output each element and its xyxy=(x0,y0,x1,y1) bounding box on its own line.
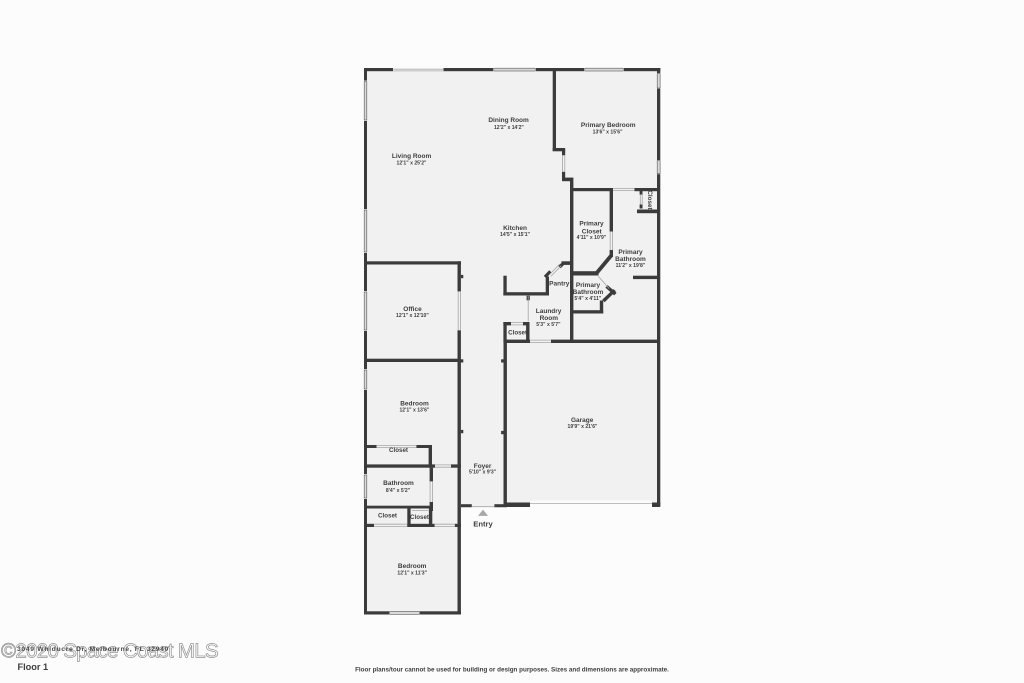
svg-text:Closet: Closet xyxy=(646,190,653,210)
svg-text:Closet: Closet xyxy=(410,514,429,521)
svg-text:Living Room: Living Room xyxy=(392,153,432,160)
svg-text:Floor 1: Floor 1 xyxy=(18,662,49,672)
svg-text:Dining Room: Dining Room xyxy=(488,117,529,124)
svg-text:Bedroom: Bedroom xyxy=(398,563,427,570)
svg-text:12'2" x 14'2": 12'2" x 14'2" xyxy=(494,125,524,131)
svg-text:Primary Bedroom: Primary Bedroom xyxy=(581,122,636,129)
svg-text:4'11" x 10'9": 4'11" x 10'9" xyxy=(577,235,607,241)
svg-text:Closet: Closet xyxy=(389,447,408,454)
svg-text:Primary: Primary xyxy=(618,249,643,256)
svg-text:Laundry: Laundry xyxy=(536,308,562,315)
svg-text:5'4" x 4'11": 5'4" x 4'11" xyxy=(574,296,601,302)
svg-text:Garage: Garage xyxy=(571,417,594,424)
svg-text:Bathroom: Bathroom xyxy=(615,256,646,263)
svg-text:19'9" x 21'6": 19'9" x 21'6" xyxy=(568,424,598,430)
svg-text:Closet: Closet xyxy=(508,330,527,337)
svg-text:11'2" x 19'8": 11'2" x 19'8" xyxy=(616,263,646,269)
svg-text:Floor plans/tour cannot be use: Floor plans/tour cannot be used for buil… xyxy=(355,666,669,673)
svg-text:5'3" x 5'7": 5'3" x 5'7" xyxy=(536,322,561,328)
svg-text:Office: Office xyxy=(403,306,422,313)
svg-text:Entry: Entry xyxy=(473,520,493,529)
svg-text:3049 Whiducre Dr, Melbourne, F: 3049 Whiducre Dr, Melbourne, FL 32940 xyxy=(17,646,169,653)
svg-text:Closet: Closet xyxy=(378,512,397,519)
svg-text:12'1" x 25'2": 12'1" x 25'2" xyxy=(397,160,427,166)
svg-text:Bathroom: Bathroom xyxy=(383,480,414,487)
svg-text:Bedroom: Bedroom xyxy=(400,400,429,407)
svg-text:Kitchen: Kitchen xyxy=(503,225,527,232)
svg-text:Primary: Primary xyxy=(579,221,604,228)
svg-text:5'10" x 9'3": 5'10" x 9'3" xyxy=(469,470,497,476)
svg-text:13'6" x 15'6": 13'6" x 15'6" xyxy=(593,129,623,135)
svg-text:Primary: Primary xyxy=(576,282,601,289)
svg-text:14'5" x 15'1": 14'5" x 15'1" xyxy=(500,232,530,238)
svg-text:Pantry: Pantry xyxy=(549,280,570,287)
svg-text:12'1" x 13'6": 12'1" x 13'6" xyxy=(399,407,429,413)
svg-text:8'4" x 5'2": 8'4" x 5'2" xyxy=(386,488,411,494)
svg-text:12'1" x 11'3": 12'1" x 11'3" xyxy=(397,571,427,577)
svg-text:12'1" x 12'10": 12'1" x 12'10" xyxy=(396,313,429,319)
